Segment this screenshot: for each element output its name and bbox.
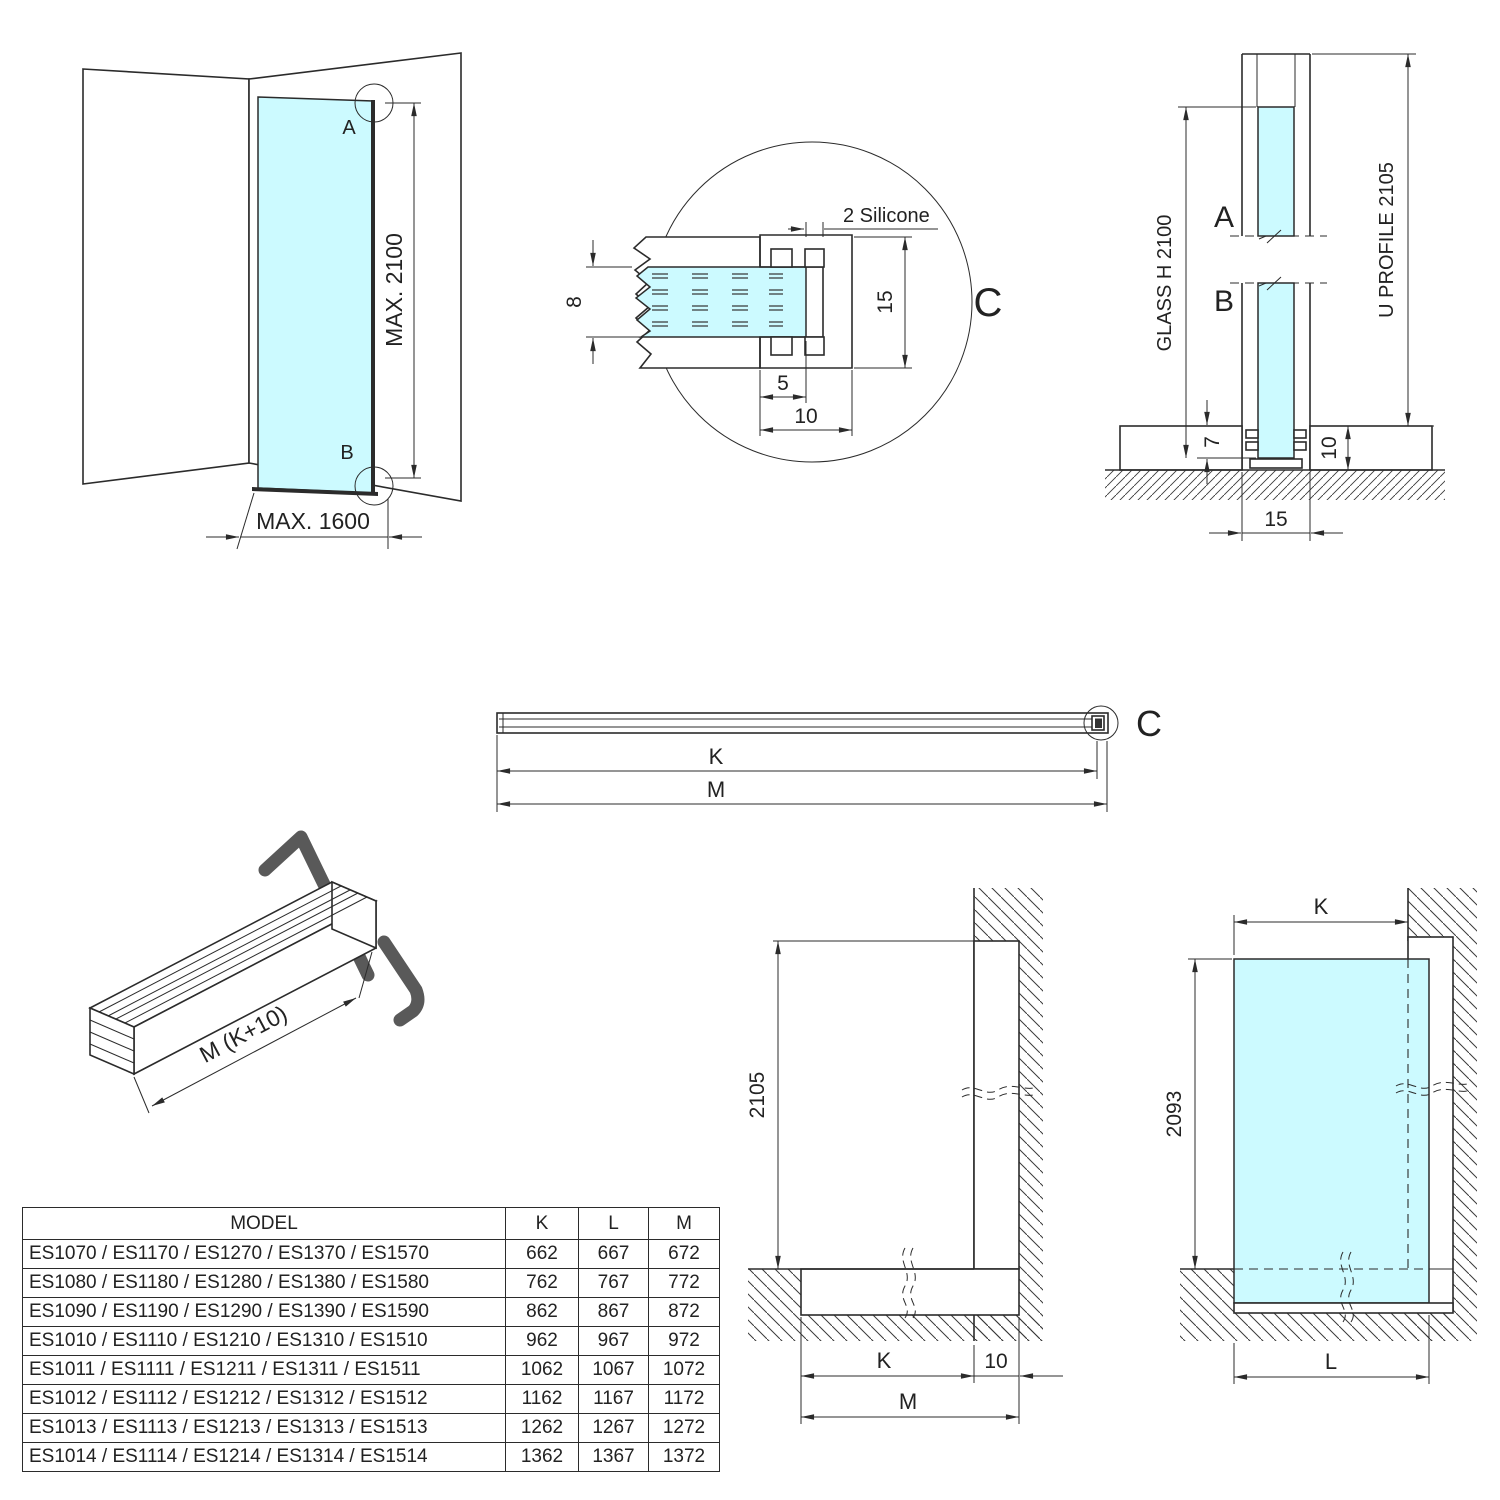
table-row: ES1011 / ES1111 / ES1211 / ES1311 / ES15…: [23, 1356, 720, 1385]
dim-glass-inset: 5: [777, 372, 789, 395]
vertical-section-view: A B GLASS H 2100 U PROFILE 2105 7 10: [1105, 54, 1445, 541]
dim-m: M: [899, 1389, 917, 1414]
dim-k: K: [1314, 894, 1329, 919]
label-a: A: [1214, 201, 1234, 234]
l-cell: 1267: [579, 1414, 649, 1443]
break-marks: [1259, 230, 1281, 290]
dim-offset: 10: [984, 1350, 1007, 1373]
wall-profile: [974, 941, 1019, 1269]
table-header-l: L: [579, 1208, 649, 1240]
detail-label-c: C: [1136, 703, 1162, 744]
k-cell: 1362: [506, 1443, 579, 1472]
k-cell: 1062: [506, 1356, 579, 1385]
table-row: ES1014 / ES1114 / ES1214 / ES1314 / ES15…: [23, 1443, 720, 1472]
dim-glass-height: GLASS H 2100: [1154, 215, 1176, 352]
m-cell: 1072: [649, 1356, 720, 1385]
m-cell: 772: [649, 1269, 720, 1298]
end-cap: [1095, 719, 1102, 729]
profile-top-view: C K M: [497, 703, 1162, 812]
table-header-model: MODEL: [23, 1208, 506, 1240]
k-cell: 1262: [506, 1414, 579, 1443]
dim-m: M: [707, 777, 725, 802]
wall-elevation-view: 2105 K 10 M: [746, 888, 1063, 1424]
dim-inset: 7: [1201, 436, 1224, 448]
technical-drawing-page: A B MAX. 2100 MAX. 1600 2 Silicone: [0, 0, 1500, 1500]
l-cell: 1167: [579, 1385, 649, 1414]
k-cell: 862: [506, 1298, 579, 1327]
glass-panel: [258, 97, 373, 493]
l-cell: 967: [579, 1327, 649, 1356]
perspective-view: A B MAX. 2100 MAX. 1600: [83, 53, 461, 549]
table-header-row: MODEL K L M: [23, 1208, 720, 1240]
silicone-label: 2 Silicone: [843, 205, 930, 227]
model-cell: ES1080 / ES1180 / ES1280 / ES1380 / ES15…: [23, 1269, 506, 1298]
dim-profile-height: 15: [874, 290, 897, 313]
profile-bar: [497, 713, 1108, 733]
left-wall: [83, 69, 249, 484]
glass-elevation-view: K 2093 L: [1163, 888, 1477, 1384]
model-cell: ES1012 / ES1112 / ES1212 / ES1312 / ES15…: [23, 1385, 506, 1414]
label-b: B: [1214, 285, 1234, 318]
table-row: ES1080 / ES1180 / ES1280 / ES1380 / ES15…: [23, 1269, 720, 1298]
glass-upper: [1258, 107, 1294, 236]
dim-profile-depth: 10: [794, 405, 817, 428]
base-plate: [1250, 459, 1302, 468]
k-cell: 1162: [506, 1385, 579, 1414]
dim-height: 2093: [1163, 1091, 1186, 1138]
l-cell: 1067: [579, 1356, 649, 1385]
model-cell: ES1090 / ES1190 / ES1290 / ES1390 / ES15…: [23, 1298, 506, 1327]
dim-base-height: 10: [1318, 436, 1341, 459]
label-b: B: [340, 442, 353, 464]
dim-height: 2105: [746, 1072, 769, 1119]
table-row: ES1012 / ES1112 / ES1212 / ES1312 / ES15…: [23, 1385, 720, 1414]
glass-panel: [1234, 959, 1429, 1303]
k-cell: 662: [506, 1240, 579, 1269]
model-cell: ES1013 / ES1113 / ES1213 / ES1313 / ES15…: [23, 1414, 506, 1443]
dim-glass-thickness: 8: [563, 296, 586, 308]
m-cell: 1272: [649, 1414, 720, 1443]
profile-groove: [805, 337, 824, 355]
m-cell: 1172: [649, 1385, 720, 1414]
label-a: A: [342, 117, 356, 139]
profile-groove: [771, 337, 792, 355]
profile-3d-view: M (K+10): [90, 837, 418, 1113]
glass-lower: [1258, 283, 1294, 458]
profile-groove: [805, 249, 824, 267]
model-cell: ES1010 / ES1110 / ES1210 / ES1310 / ES15…: [23, 1327, 506, 1356]
detail-c-view: 2 Silicone 8 15 5 10 C: [563, 142, 1002, 462]
dim-max-height: MAX. 2100: [381, 233, 407, 347]
table-row: ES1090 / ES1190 / ES1290 / ES1390 / ES15…: [23, 1298, 720, 1327]
end-cap-return-edge: [384, 942, 418, 1020]
silicone-bead: [806, 267, 823, 337]
dim-max-width: MAX. 1600: [256, 508, 370, 534]
m-cell: 672: [649, 1240, 720, 1269]
l-cell: 1367: [579, 1443, 649, 1472]
table-header-k: K: [506, 1208, 579, 1240]
floor-profile: [801, 1269, 1019, 1315]
floor-hatch: [1105, 470, 1445, 500]
m-cell: 872: [649, 1298, 720, 1327]
dim-l: L: [1325, 1349, 1337, 1374]
k-cell: 962: [506, 1327, 579, 1356]
profile-groove: [771, 249, 792, 267]
k-cell: 762: [506, 1269, 579, 1298]
dim-k: K: [877, 1348, 892, 1373]
model-cell: ES1070 / ES1170 / ES1270 / ES1370 / ES15…: [23, 1240, 506, 1269]
l-cell: 767: [579, 1269, 649, 1298]
model-cell: ES1014 / ES1114 / ES1214 / ES1314 / ES15…: [23, 1443, 506, 1472]
m-cell: 972: [649, 1327, 720, 1356]
model-cell: ES1011 / ES1111 / ES1211 / ES1311 / ES15…: [23, 1356, 506, 1385]
model-table: MODEL K L M ES1070 / ES1170 / ES1270 / E…: [22, 1207, 720, 1472]
detail-label-c: C: [974, 281, 1003, 325]
dim-profile-total: U PROFILE 2105: [1376, 162, 1398, 318]
m-cell: 1372: [649, 1443, 720, 1472]
dim-base-width: 15: [1264, 508, 1287, 531]
l-cell: 667: [579, 1240, 649, 1269]
dim-k: K: [709, 744, 724, 769]
table-row: ES1010 / ES1110 / ES1210 / ES1310 / ES15…: [23, 1327, 720, 1356]
l-cell: 867: [579, 1298, 649, 1327]
table-row: ES1013 / ES1113 / ES1213 / ES1313 / ES15…: [23, 1414, 720, 1443]
table-header-m: M: [649, 1208, 720, 1240]
table-row: ES1070 / ES1170 / ES1270 / ES1370 / ES15…: [23, 1240, 720, 1269]
